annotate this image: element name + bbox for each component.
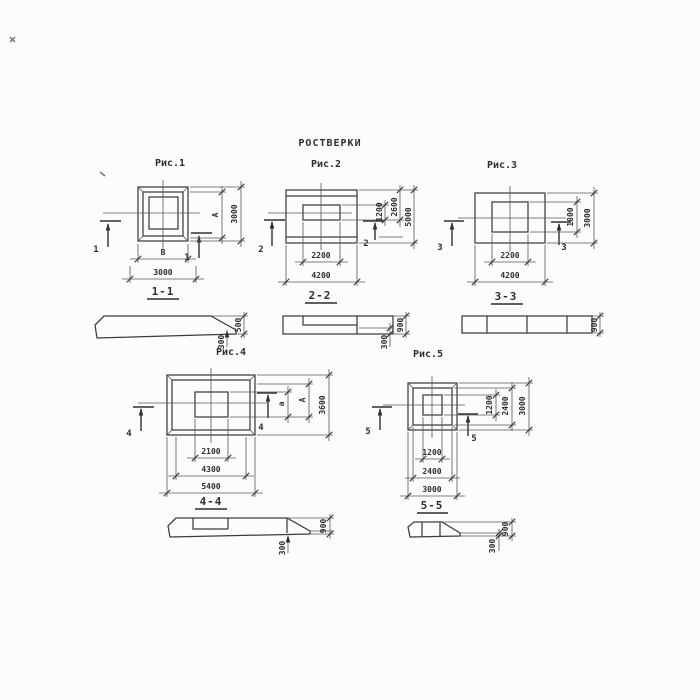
- svg-text:3000: 3000: [153, 268, 172, 277]
- svg-text:2600: 2600: [390, 197, 399, 216]
- svg-text:3000: 3000: [230, 204, 239, 223]
- svg-text:500: 500: [234, 318, 243, 333]
- svg-text:3: 3: [437, 243, 442, 253]
- figure-3-caption: Рис.3: [487, 160, 517, 171]
- svg-text:1200: 1200: [485, 395, 494, 414]
- svg-text:5000: 5000: [404, 207, 413, 226]
- svg-text:900: 900: [396, 318, 405, 333]
- svg-text:4200: 4200: [500, 271, 519, 280]
- svg-text:2400: 2400: [501, 396, 510, 415]
- svg-text:5: 5: [365, 427, 370, 437]
- fig5-section-label: 5-5: [421, 499, 444, 512]
- svg-text:900: 900: [501, 522, 510, 537]
- svg-text:3: 3: [561, 243, 566, 253]
- svg-text:1200: 1200: [422, 448, 441, 457]
- svg-text:5: 5: [471, 434, 476, 444]
- svg-text:2: 2: [258, 245, 263, 255]
- svg-text:3600: 3600: [318, 395, 327, 414]
- svg-text:300: 300: [488, 539, 497, 554]
- section-3-3-view: 900: [462, 312, 604, 337]
- svg-text:1: 1: [93, 245, 98, 255]
- svg-text:4300: 4300: [201, 465, 220, 474]
- svg-text:2400: 2400: [422, 467, 441, 476]
- svg-text:900: 900: [319, 519, 328, 534]
- fig3-section-label: 3-3: [495, 290, 518, 303]
- fig1-section-label: 1-1: [152, 285, 175, 298]
- section-4-4-profile: [168, 518, 310, 537]
- section-1-1-profile: [95, 316, 236, 338]
- svg-text:2100: 2100: [201, 447, 220, 456]
- svg-text:3000: 3000: [583, 208, 592, 227]
- figure-5-caption: Рис.5: [413, 349, 443, 360]
- svg-text:2200: 2200: [311, 251, 330, 260]
- sheet-title: РОСТВЕРКИ: [298, 138, 361, 149]
- svg-text:2200: 2200: [500, 251, 519, 260]
- drawing-sheet: РОСТВЕРКИ Рис.1 1 1 В 3000: [0, 0, 700, 700]
- svg-text:4: 4: [258, 423, 264, 433]
- svg-text:5400: 5400: [201, 482, 220, 491]
- svg-text:1200: 1200: [375, 202, 384, 221]
- fig4-section-label: 4-4: [200, 495, 223, 508]
- svg-text:1800: 1800: [566, 207, 575, 226]
- svg-text:300: 300: [278, 541, 287, 556]
- svg-text:А: А: [211, 212, 220, 217]
- svg-text:3000: 3000: [518, 396, 527, 415]
- paper-background: [0, 0, 700, 700]
- svg-text:а: а: [277, 401, 286, 406]
- grillage-drawing: РОСТВЕРКИ Рис.1 1 1 В 3000: [0, 0, 700, 700]
- figure-1-caption: Рис.1: [155, 158, 185, 169]
- svg-text:3000: 3000: [422, 485, 441, 494]
- svg-text:4: 4: [126, 429, 132, 439]
- svg-text:2: 2: [363, 239, 368, 249]
- svg-text:900: 900: [590, 318, 599, 333]
- svg-text:А: А: [298, 397, 307, 402]
- figure-2-caption: Рис.2: [311, 159, 341, 170]
- svg-text:В: В: [161, 248, 166, 257]
- fig2-section-label: 2-2: [309, 289, 332, 302]
- figure-4-caption: Рис.4: [216, 347, 246, 358]
- svg-text:4200: 4200: [311, 271, 330, 280]
- svg-text:300: 300: [380, 335, 389, 350]
